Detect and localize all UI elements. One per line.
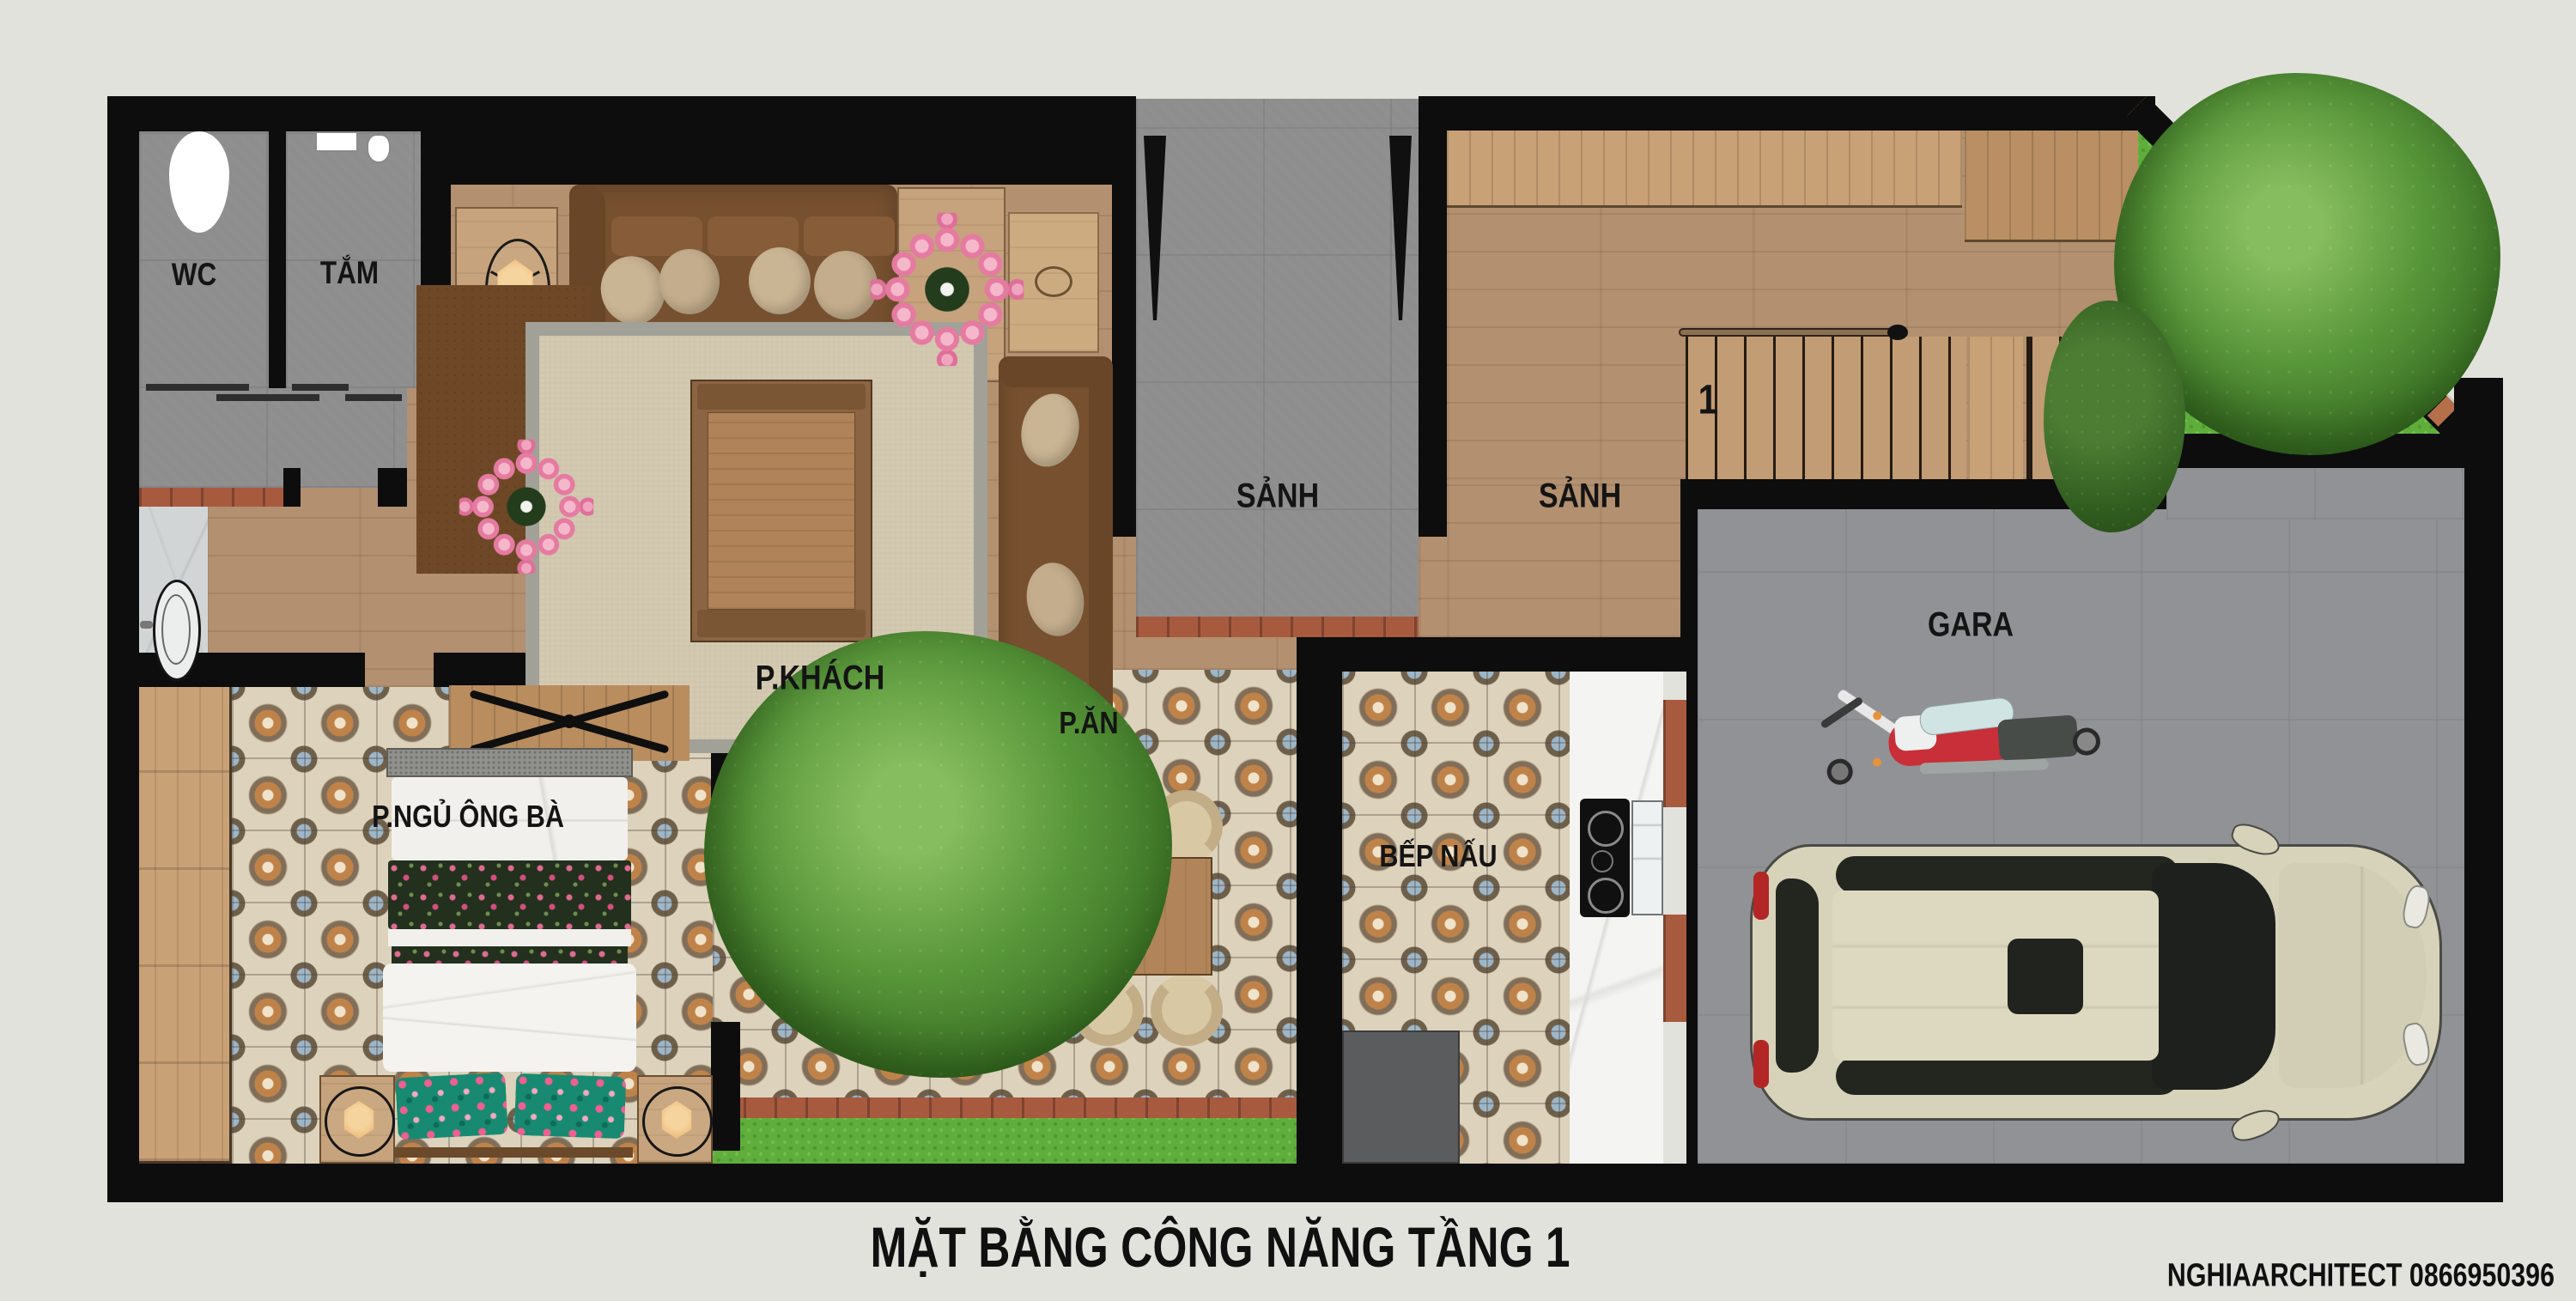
kitchen-island-dark bbox=[1342, 1030, 1460, 1164]
brick-pillar-top bbox=[1663, 700, 1686, 807]
bed-blanket-floral bbox=[388, 860, 631, 929]
wall-living-entry bbox=[1112, 131, 1136, 537]
label-entry-hall: SẢNH bbox=[1236, 477, 1319, 516]
bed-pillow-green-1 bbox=[395, 1073, 508, 1140]
lotus-vase-living bbox=[459, 440, 593, 574]
wall-wc-bath-separator bbox=[269, 131, 286, 388]
lotus-vase-side-table bbox=[871, 213, 1024, 367]
toilet bbox=[367, 134, 391, 163]
sofa-side-back bbox=[1089, 359, 1113, 723]
architect-credit: NGHIAARCHITECT 0866950396 bbox=[2167, 1258, 2555, 1295]
cooktop-burner-2 bbox=[1591, 850, 1613, 872]
vanity-faucet bbox=[140, 621, 153, 629]
landing-threshold-brick bbox=[139, 488, 289, 507]
cooktop-burner-1 bbox=[1588, 811, 1624, 847]
staircase-landing bbox=[1968, 337, 2023, 479]
label-living: P.KHÁCH bbox=[756, 660, 885, 698]
wall-kitchen-left bbox=[1297, 637, 1342, 1202]
kitchen-counter bbox=[1570, 672, 1663, 1164]
dining-chair-4 bbox=[1151, 974, 1223, 1046]
car-taillight-bottom bbox=[1753, 1040, 1769, 1088]
staircase-flight-1 bbox=[1686, 337, 1966, 479]
courtyard-lawn bbox=[713, 1118, 1297, 1164]
courtyard-brick-edge bbox=[713, 1097, 1297, 1118]
sofa-pillow-3 bbox=[749, 247, 811, 314]
label-stair-hall: SẢNH bbox=[1539, 477, 1621, 516]
car-taillight-top bbox=[1753, 872, 1769, 920]
bed-pillow-green-2 bbox=[514, 1073, 626, 1139]
bed-sheet-strip bbox=[388, 929, 631, 946]
car-windshield bbox=[2152, 863, 2275, 1090]
wall-right bbox=[2464, 391, 2503, 1202]
label-wc: WC bbox=[172, 257, 216, 293]
sofa-pillow-4 bbox=[814, 251, 878, 319]
label-bedroom: P.NGỦ ÔNG BÀ bbox=[372, 799, 564, 835]
wall-bedroom-top-a bbox=[107, 653, 365, 687]
refrigerator bbox=[1631, 800, 1663, 915]
car-sunroof bbox=[2008, 939, 2083, 1014]
door-jamb-landing-1 bbox=[283, 468, 301, 507]
motorcycle-front-wheel bbox=[1826, 758, 1854, 786]
bed-headboard bbox=[386, 748, 633, 777]
label-dining: P.ĂN bbox=[1059, 705, 1118, 741]
label-stair-number: 1 bbox=[1698, 377, 1718, 424]
ceiling-fan-hub bbox=[562, 714, 576, 728]
stair-handrail bbox=[1679, 328, 1898, 337]
coffee-table-bench-bottom bbox=[697, 610, 866, 637]
washbasin-bath bbox=[315, 131, 358, 152]
page-title: MẶT BẰNG CÔNG NĂNG TẦNG 1 bbox=[870, 1214, 1570, 1280]
floor-passage-hall bbox=[1419, 537, 1447, 637]
stair-handrail-knob bbox=[1887, 325, 1908, 340]
brick-pillar-bottom bbox=[1663, 915, 1686, 1022]
door-jamb-landing-2 bbox=[378, 468, 407, 507]
hall-closet-2 bbox=[1965, 131, 2138, 242]
floor-entry-hall bbox=[1136, 99, 1419, 637]
car-window-bottom bbox=[1836, 1057, 2179, 1095]
bed-duvet bbox=[383, 964, 636, 1072]
wall-entry-right bbox=[1419, 99, 1447, 537]
wall-top-left bbox=[107, 96, 451, 131]
floor-plan-page: { "plan": { "title": "MẶT BẰNG CÔNG NĂNG… bbox=[0, 0, 2576, 1301]
car bbox=[1750, 837, 2449, 1128]
motorcycle-signal-2 bbox=[1873, 757, 1882, 767]
bed-blanket-floral-2 bbox=[392, 946, 628, 964]
tree-courtyard bbox=[704, 631, 1172, 1078]
side-table-knot bbox=[1035, 266, 1072, 297]
car-window-top bbox=[1836, 856, 2179, 894]
coffee-table-top bbox=[708, 412, 855, 610]
coffee-table-bench-top bbox=[697, 384, 866, 410]
motorcycle-rear-box bbox=[1997, 714, 2079, 761]
cooktop-burner-3 bbox=[1588, 878, 1624, 914]
sliding-door-wc-bar2 bbox=[216, 394, 319, 401]
wall-left bbox=[107, 96, 139, 1202]
sliding-door-bath-bar2 bbox=[345, 394, 402, 401]
wall-hall-kitchen bbox=[1342, 637, 1680, 672]
wall-kitchen-garage bbox=[1686, 672, 1698, 1164]
car-rear-glass bbox=[1776, 878, 1819, 1073]
motorcycle bbox=[1813, 669, 2103, 800]
label-bath: TẮM bbox=[320, 255, 379, 291]
wall-courtyard-bed-2 bbox=[711, 1022, 740, 1151]
floor-bath-landing bbox=[139, 388, 407, 488]
sofa-pillow-2 bbox=[659, 249, 720, 314]
hall-closet bbox=[1447, 131, 1962, 208]
entry-threshold-brick bbox=[1136, 617, 1419, 637]
label-garage: GARA bbox=[1928, 606, 2014, 645]
wall-top-right bbox=[1419, 96, 2155, 131]
bed-foot-rail bbox=[386, 1147, 633, 1158]
sliding-door-bath-bar1 bbox=[292, 384, 349, 391]
sliding-door-wc-bar1 bbox=[146, 384, 249, 391]
car-roof bbox=[1832, 891, 2159, 1061]
floor-garage-upper bbox=[2166, 468, 2471, 520]
vanity-sink-inner bbox=[161, 594, 191, 665]
label-kitchen: BẾP NẤU bbox=[1379, 838, 1497, 874]
wall-top-living bbox=[451, 96, 1136, 185]
floor-plan: WC TẮM P.KHÁCH SẢNH SẢNH 1 GARA P.NGỦ ÔN… bbox=[0, 0, 2576, 1301]
